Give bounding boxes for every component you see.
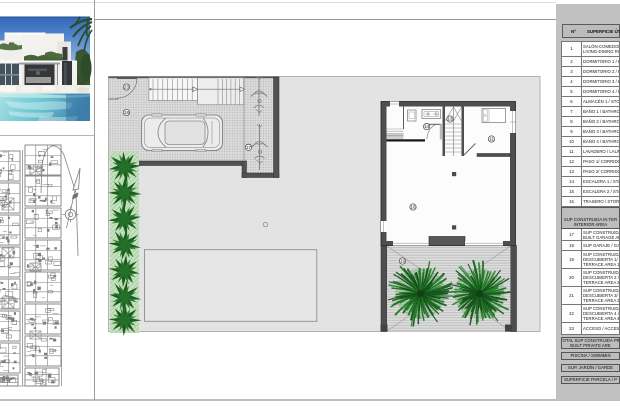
svg-text:10: 10 bbox=[411, 205, 416, 210]
svg-text:18: 18 bbox=[124, 110, 129, 115]
svg-text:17: 17 bbox=[246, 145, 251, 150]
svg-text:13: 13 bbox=[448, 117, 453, 122]
svg-text:23: 23 bbox=[124, 85, 129, 90]
svg-text:11: 11 bbox=[489, 137, 494, 142]
svg-text:19: 19 bbox=[400, 259, 405, 264]
svg-text:14: 14 bbox=[424, 124, 429, 129]
